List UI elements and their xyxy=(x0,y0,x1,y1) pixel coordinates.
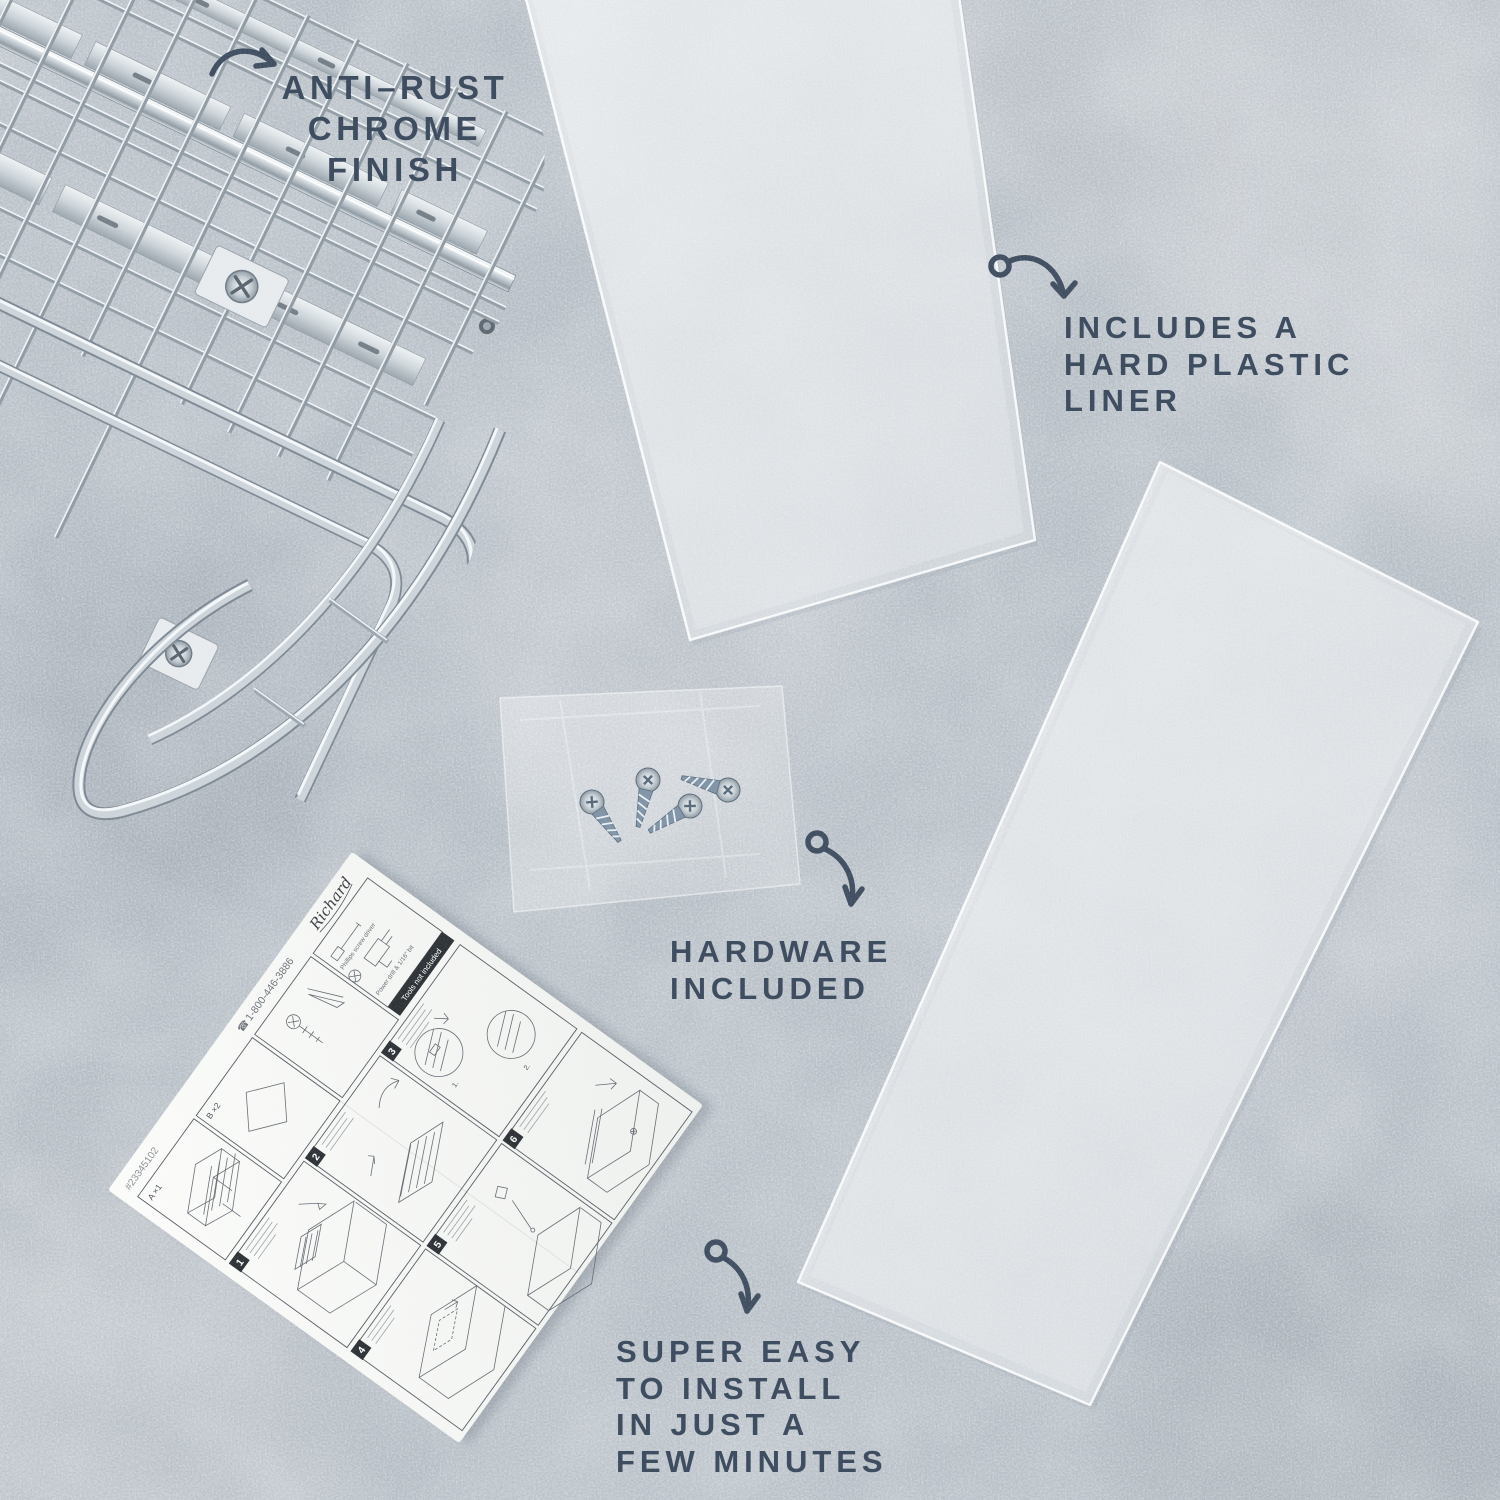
callout-hardware-included: HARDWARE INCLUDED xyxy=(670,934,1050,1007)
product-photo-scene: #23345102 ☎ 1-800-446-3886 Richard A ×1 … xyxy=(0,0,1500,1500)
callout-easy-install: SUPER EASY TO INSTALL IN JUST A FEW MINU… xyxy=(616,1334,1036,1480)
callout-includes-liner: INCLUDES A HARD PLASTIC LINER xyxy=(1064,310,1484,420)
callout-anti-rust: ANTI–RUST CHROME FINISH xyxy=(247,68,543,191)
grain-overlay xyxy=(0,0,1500,1500)
product-photo-stage: #23345102 ☎ 1-800-446-3886 Richard A ×1 … xyxy=(0,0,1500,1500)
